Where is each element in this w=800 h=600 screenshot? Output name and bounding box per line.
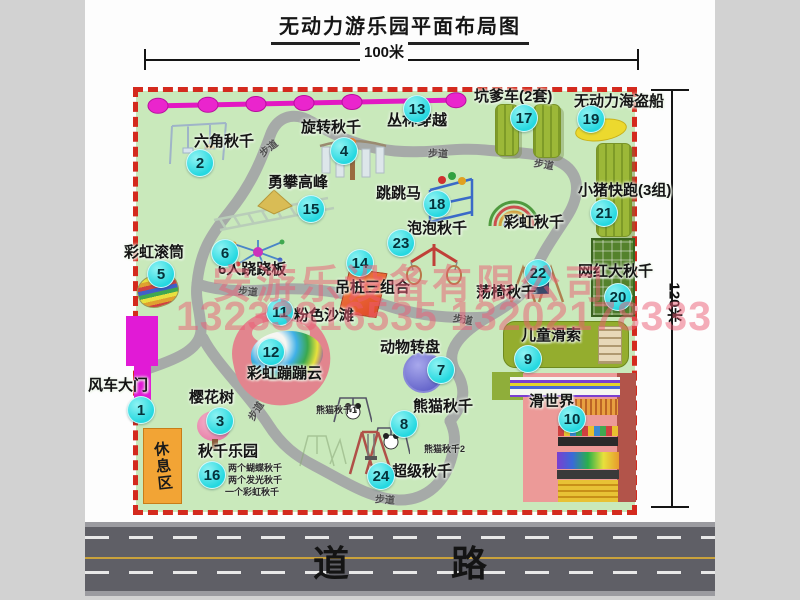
marker-circle-8[interactable]: 8 <box>390 410 418 438</box>
markers-layer: 123456789101112131415161718192021222324 <box>0 0 800 600</box>
marker-circle-2[interactable]: 2 <box>186 149 214 177</box>
marker-circle-16[interactable]: 16 <box>198 461 226 489</box>
marker-circle-3[interactable]: 3 <box>206 407 234 435</box>
marker-circle-15[interactable]: 15 <box>297 195 325 223</box>
marker-circle-6[interactable]: 6 <box>211 239 239 267</box>
marker-circle-17[interactable]: 17 <box>510 104 538 132</box>
marker-circle-19[interactable]: 19 <box>577 105 605 133</box>
marker-circle-4[interactable]: 4 <box>330 137 358 165</box>
marker-circle-13[interactable]: 13 <box>403 95 431 123</box>
marker-circle-9[interactable]: 9 <box>514 345 542 373</box>
marker-circle-14[interactable]: 14 <box>346 249 374 277</box>
marker-circle-20[interactable]: 20 <box>604 283 632 311</box>
marker-circle-10[interactable]: 10 <box>558 405 586 433</box>
marker-circle-11[interactable]: 11 <box>266 298 294 326</box>
marker-circle-24[interactable]: 24 <box>367 462 395 490</box>
marker-circle-18[interactable]: 18 <box>423 190 451 218</box>
marker-circle-23[interactable]: 23 <box>387 229 415 257</box>
marker-circle-7[interactable]: 7 <box>427 356 455 384</box>
marker-circle-12[interactable]: 12 <box>257 338 285 366</box>
marker-circle-22[interactable]: 22 <box>524 259 552 287</box>
marker-circle-1[interactable]: 1 <box>127 396 155 424</box>
marker-circle-21[interactable]: 21 <box>590 199 618 227</box>
playground-plan: 无动力游乐园平面布局图 100米 120米 <box>0 0 800 600</box>
marker-circle-5[interactable]: 5 <box>147 260 175 288</box>
